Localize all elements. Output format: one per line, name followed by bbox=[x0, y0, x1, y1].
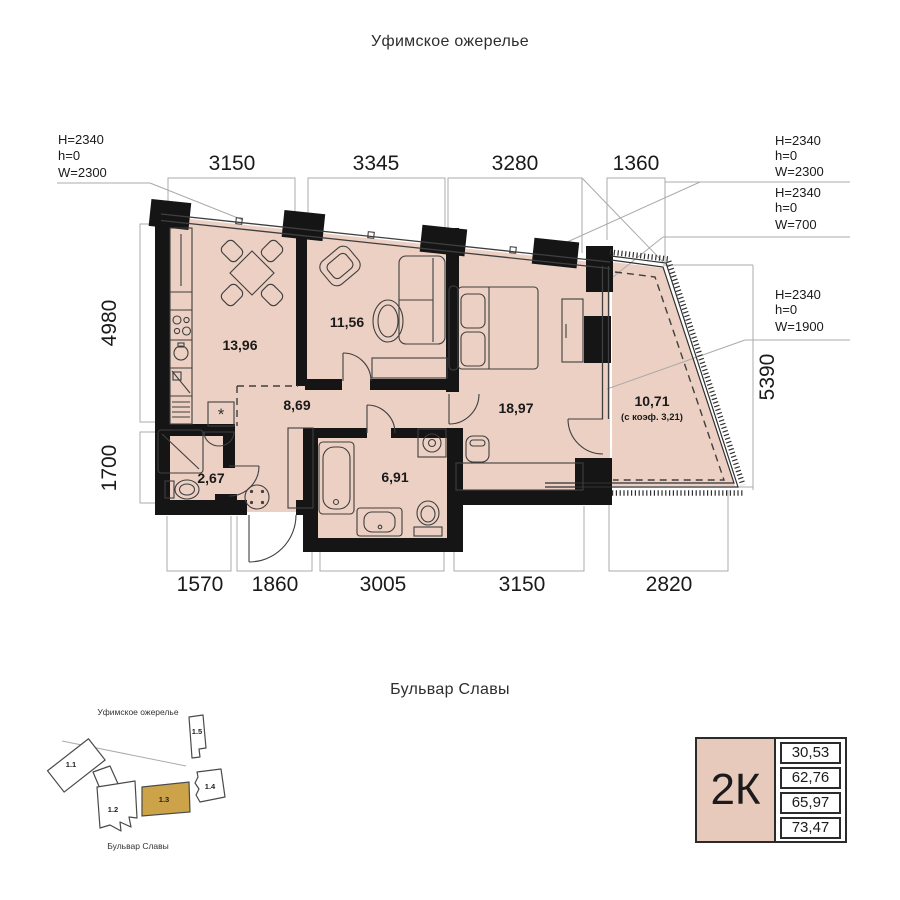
site-building-1-3[interactable]: 1.3 bbox=[142, 782, 190, 816]
ann-l-2: h=0 bbox=[58, 148, 80, 163]
site-building-1-5[interactable]: 1.5 bbox=[189, 715, 206, 758]
ann-r1-2: h=0 bbox=[775, 148, 797, 163]
ann-r3-2: h=0 bbox=[775, 302, 797, 317]
ann-l-1: H=2340 bbox=[58, 132, 104, 147]
site-building-1-4-label: 1.4 bbox=[205, 782, 216, 791]
kitchen-area: 13,96 bbox=[222, 337, 257, 353]
dim-right-1: 5390 bbox=[756, 354, 779, 401]
window-annotation-right-2: H=2340 h=0 W=700 bbox=[775, 185, 821, 232]
bedroom-area: 18,97 bbox=[498, 400, 533, 416]
apartment-type: 2К bbox=[697, 739, 776, 841]
site-building-1-1[interactable]: 1.1 bbox=[48, 739, 106, 792]
site-district-label: Уфимское ожерелье bbox=[97, 707, 178, 717]
entrance-door bbox=[249, 515, 296, 562]
street-label: Бульвар Славы bbox=[0, 681, 900, 699]
balcony-area: 10,71 bbox=[634, 393, 669, 409]
area-value-2: 62,76 bbox=[780, 767, 841, 789]
dim-top-3: 3280 bbox=[492, 152, 539, 175]
area-value-4: 73,47 bbox=[780, 817, 841, 839]
site-building-1-3-label: 1.3 bbox=[159, 795, 169, 804]
dim-top-1: 3150 bbox=[209, 152, 256, 175]
ann-r2-3: W=700 bbox=[775, 217, 817, 232]
ann-r2-2: h=0 bbox=[775, 200, 797, 215]
dim-top-4: 1360 bbox=[613, 152, 660, 175]
site-building-1-2[interactable]: 1.2 bbox=[97, 781, 137, 831]
ann-r1-3: W=2300 bbox=[775, 164, 824, 179]
living-area: 11,56 bbox=[330, 314, 364, 330]
dim-top-2: 3345 bbox=[353, 152, 400, 175]
dim-bottom-1: 1570 bbox=[177, 573, 224, 596]
ann-r3-3: W=1900 bbox=[775, 319, 824, 334]
hall-area: 8,69 bbox=[283, 397, 310, 413]
asterisk-mark: * bbox=[218, 405, 225, 424]
dim-bottom-2: 1860 bbox=[252, 573, 299, 596]
dim-bottom-4: 3150 bbox=[499, 573, 546, 596]
area-value-3: 65,97 bbox=[780, 792, 841, 814]
balcony-floor bbox=[612, 262, 735, 486]
ann-r1-1: H=2340 bbox=[775, 133, 821, 148]
window-annotation-right-3: H=2340 h=0 W=1900 bbox=[775, 287, 824, 334]
site-building-1-1-label: 1.1 bbox=[66, 760, 76, 769]
area-values: 30,53 62,76 65,97 73,47 bbox=[776, 739, 845, 841]
bathroom-area: 2,67 bbox=[197, 470, 224, 486]
area-value-1: 30,53 bbox=[780, 742, 841, 764]
bath-area: 6,91 bbox=[381, 469, 408, 485]
site-street-label: Бульвар Славы bbox=[107, 841, 169, 851]
site-building-1-4[interactable]: 1.4 bbox=[195, 769, 225, 802]
floorplan-page: Уфимское ожерелье bbox=[0, 0, 900, 900]
ann-r2-1: H=2340 bbox=[775, 185, 821, 200]
apartment-info-card[interactable]: 2К 30,53 62,76 65,97 73,47 bbox=[695, 737, 847, 843]
dim-left-1: 4980 bbox=[98, 300, 121, 347]
site-building-1-5-label: 1.5 bbox=[192, 727, 202, 736]
ann-r3-1: H=2340 bbox=[775, 287, 821, 302]
window-annotation-left: H=2340 h=0 W=2300 bbox=[58, 132, 107, 180]
window-annotation-right-1: H=2340 h=0 W=2300 bbox=[775, 133, 824, 179]
ann-l-3: W=2300 bbox=[58, 165, 107, 180]
site-plan: Уфимское ожерелье 1.1 1.2 1.3 1.4 1.5 bbox=[48, 707, 225, 851]
balcony-coefficient: (с коэф. 3,21) bbox=[621, 412, 683, 423]
dim-bottom-3: 3005 bbox=[360, 573, 407, 596]
dim-bottom-5: 2820 bbox=[646, 573, 693, 596]
dim-left-2: 1700 bbox=[98, 445, 121, 492]
site-building-1-2-label: 1.2 bbox=[108, 805, 118, 814]
